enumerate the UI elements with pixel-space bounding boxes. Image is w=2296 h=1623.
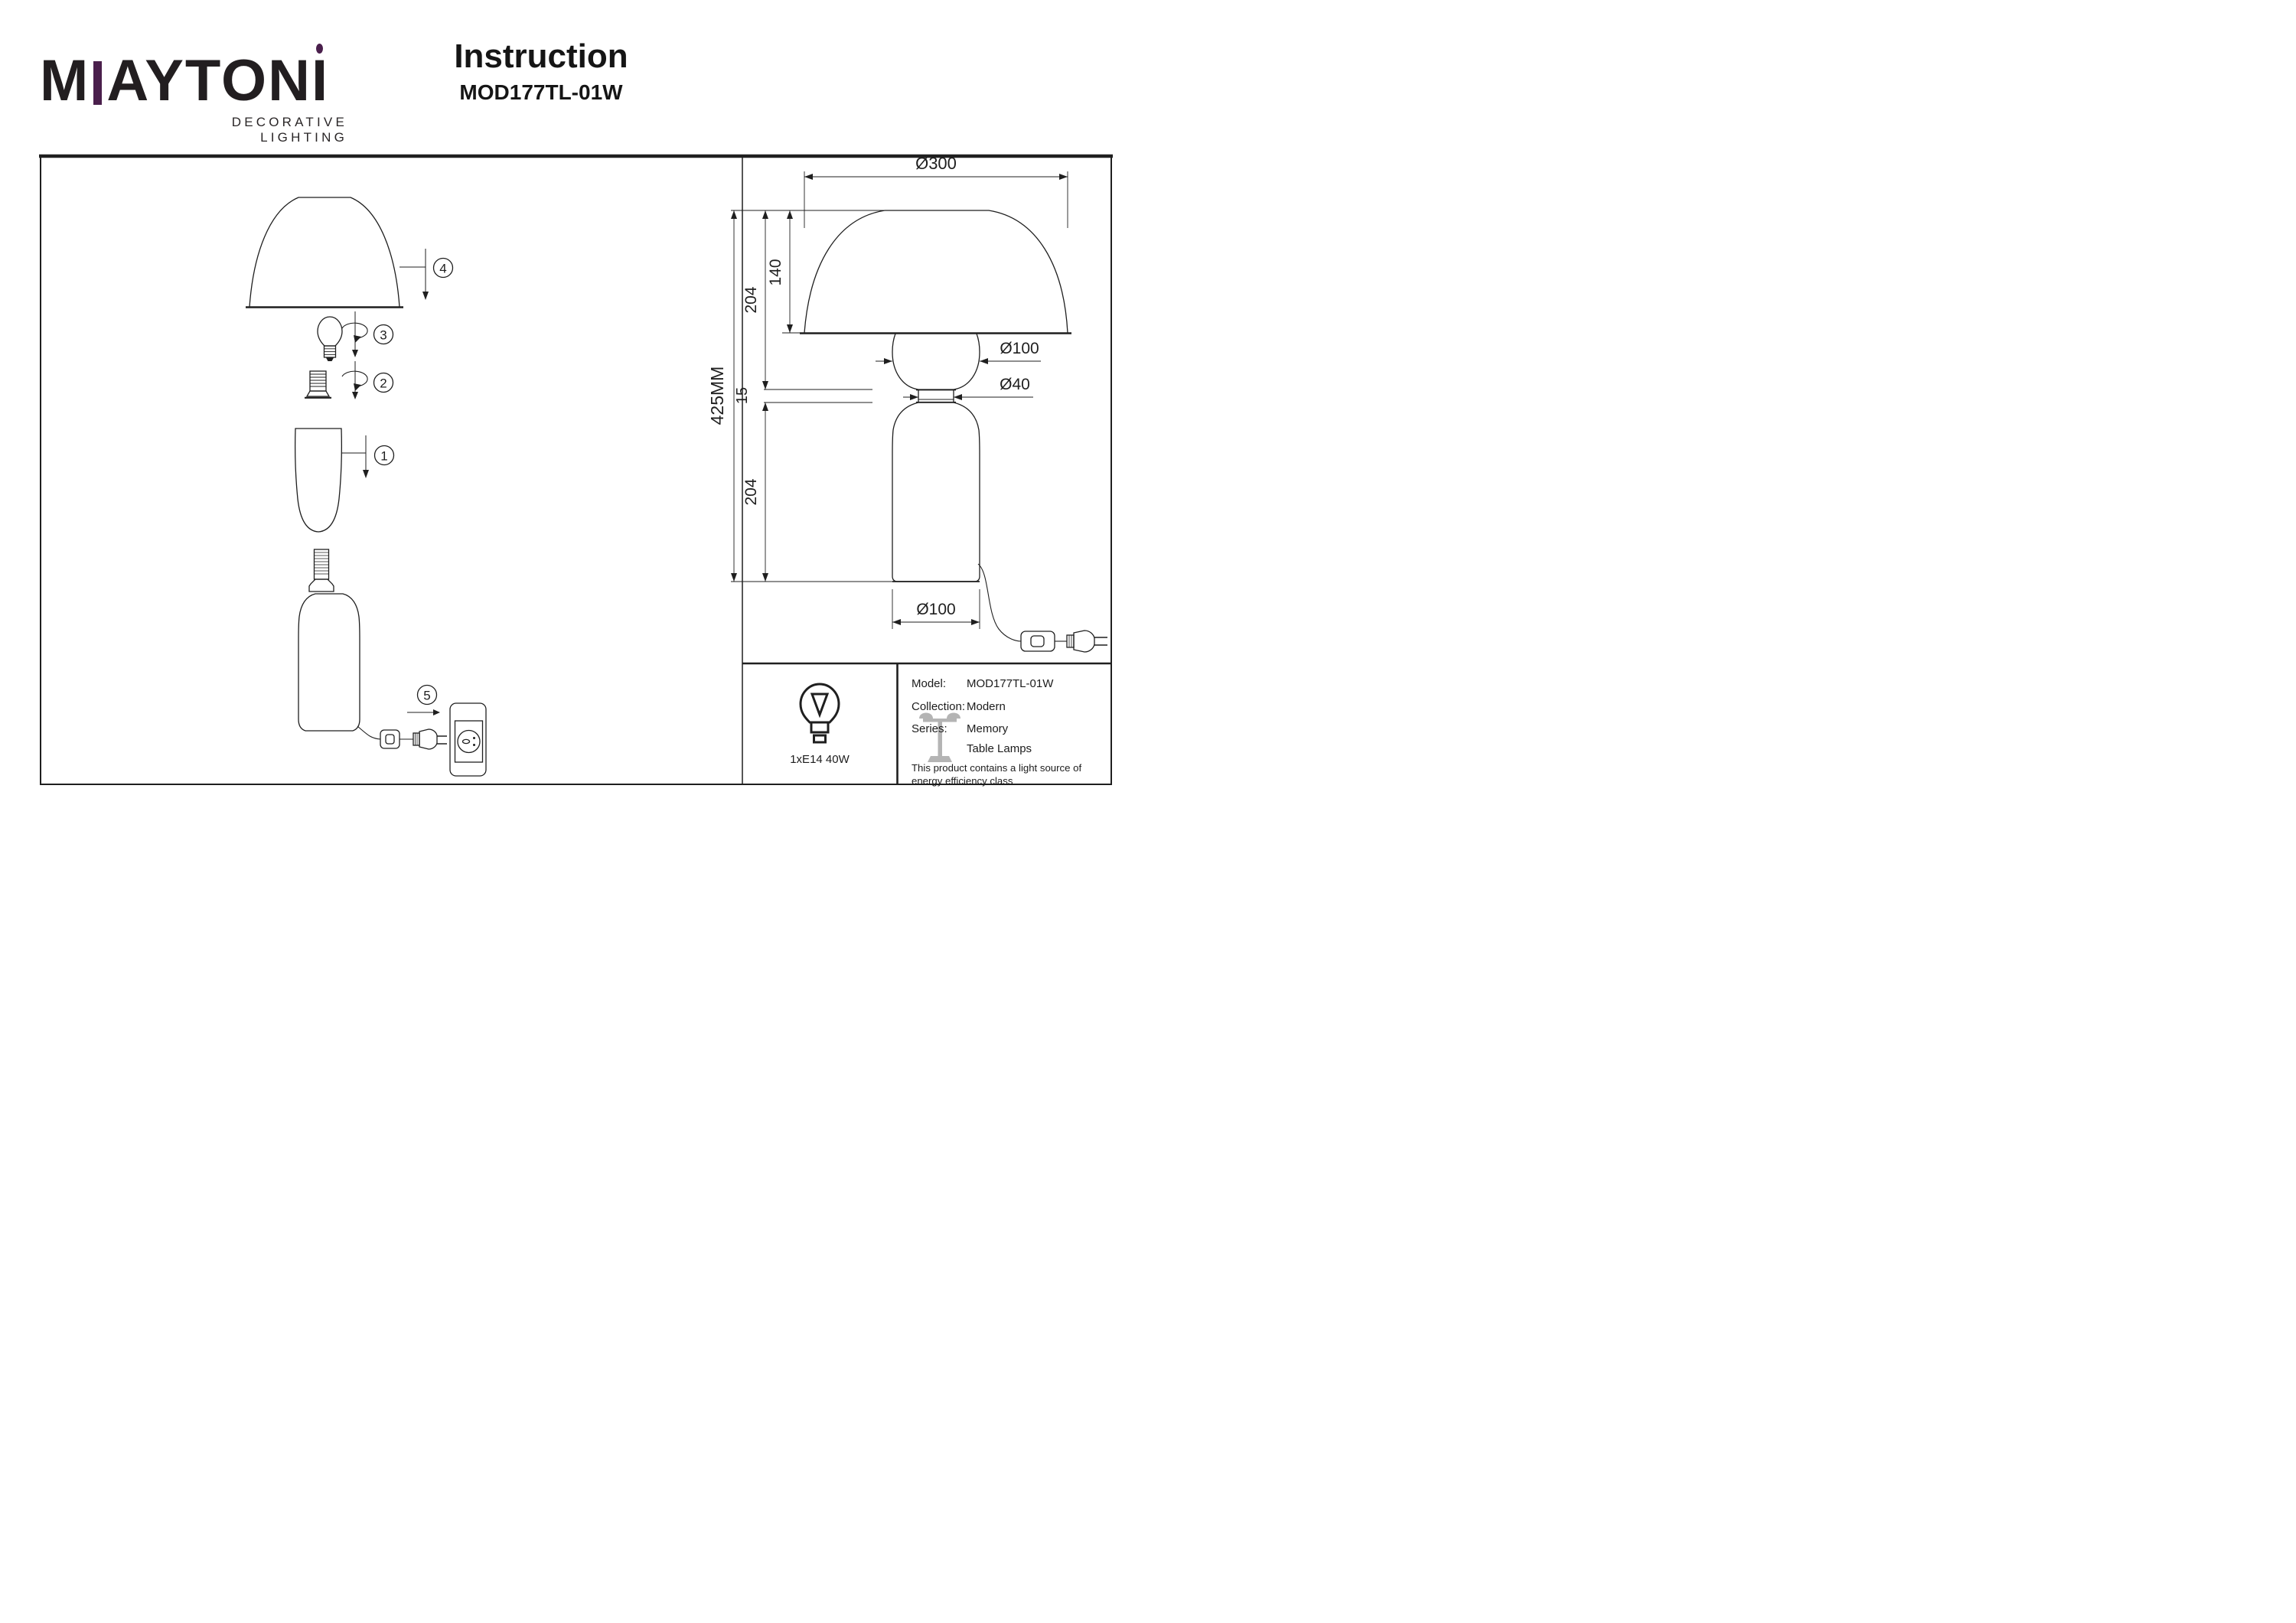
- dim-neck-diameter: Ø40: [903, 376, 1033, 400]
- series-value-2: Table Lamps: [967, 742, 1032, 755]
- dim-204-lower-label: 204: [742, 478, 760, 505]
- dim-140: 140: [767, 210, 842, 333]
- dim-lower-204: 204: [742, 402, 768, 582]
- lamp-outline: [800, 210, 1071, 582]
- note-line-1: This product contains a light source of: [912, 762, 1112, 774]
- dim-shade-diameter: Ø300: [804, 154, 1068, 228]
- dim-15: 15: [734, 387, 872, 404]
- collection-value: Modern: [967, 700, 1006, 713]
- bulb-part-drawing: 3: [318, 311, 393, 361]
- dim-glass-diameter: Ø100: [876, 340, 1041, 364]
- bulb-spec-icon: [801, 684, 839, 742]
- dim-204-upper-label: 204: [742, 286, 760, 313]
- shade-part-drawing: 4: [246, 197, 453, 308]
- note-line-2: energy efficiency class: [912, 775, 1112, 787]
- step-2-number: 2: [380, 376, 386, 391]
- wall-socket-drawing: [450, 703, 486, 776]
- step-1-number: 1: [380, 449, 387, 464]
- collection-label: Collection:: [912, 700, 965, 713]
- dim-425-label: 425MM: [707, 367, 727, 425]
- socket-part-drawing: 2: [305, 361, 393, 399]
- drawing-frame: [39, 155, 1113, 784]
- glass-part-drawing: 1: [295, 429, 394, 532]
- dim-100-upper-label: Ø100: [1000, 340, 1039, 357]
- model-value: MOD177TL-01W: [967, 677, 1053, 690]
- step-4-number: 4: [439, 262, 446, 276]
- threaded-rod-drawing: [309, 549, 334, 592]
- step-3-number: 3: [380, 328, 386, 343]
- instruction-sheet: MAYTONI DECORATIVE LIGHTING Instruction …: [0, 0, 1148, 812]
- dim-base-diameter: Ø100: [892, 589, 980, 629]
- base-body-drawing: [298, 594, 360, 731]
- dim-upper-204: 204: [742, 210, 768, 389]
- dim-40-label: Ø40: [1000, 376, 1030, 393]
- series-watermark-icon: [919, 713, 960, 763]
- series-label: Series:: [912, 722, 947, 735]
- cord-switch-plug-drawing: 5: [357, 686, 447, 750]
- assembly-diagram: 4 3: [246, 197, 486, 776]
- dimension-drawing: 425MM 204 140: [707, 154, 1107, 652]
- step-5-number: 5: [423, 689, 430, 703]
- model-label: Model:: [912, 677, 946, 690]
- dim-140-label: 140: [767, 259, 784, 285]
- dim-cord-switch-plug: [978, 564, 1107, 652]
- dim-300-label: Ø300: [915, 154, 957, 173]
- bulb-spec-label: 1xE14 40W: [778, 753, 862, 766]
- dim-100-lower-label: Ø100: [916, 601, 955, 618]
- dim-15-label: 15: [734, 387, 751, 404]
- series-value: Memory: [967, 722, 1008, 735]
